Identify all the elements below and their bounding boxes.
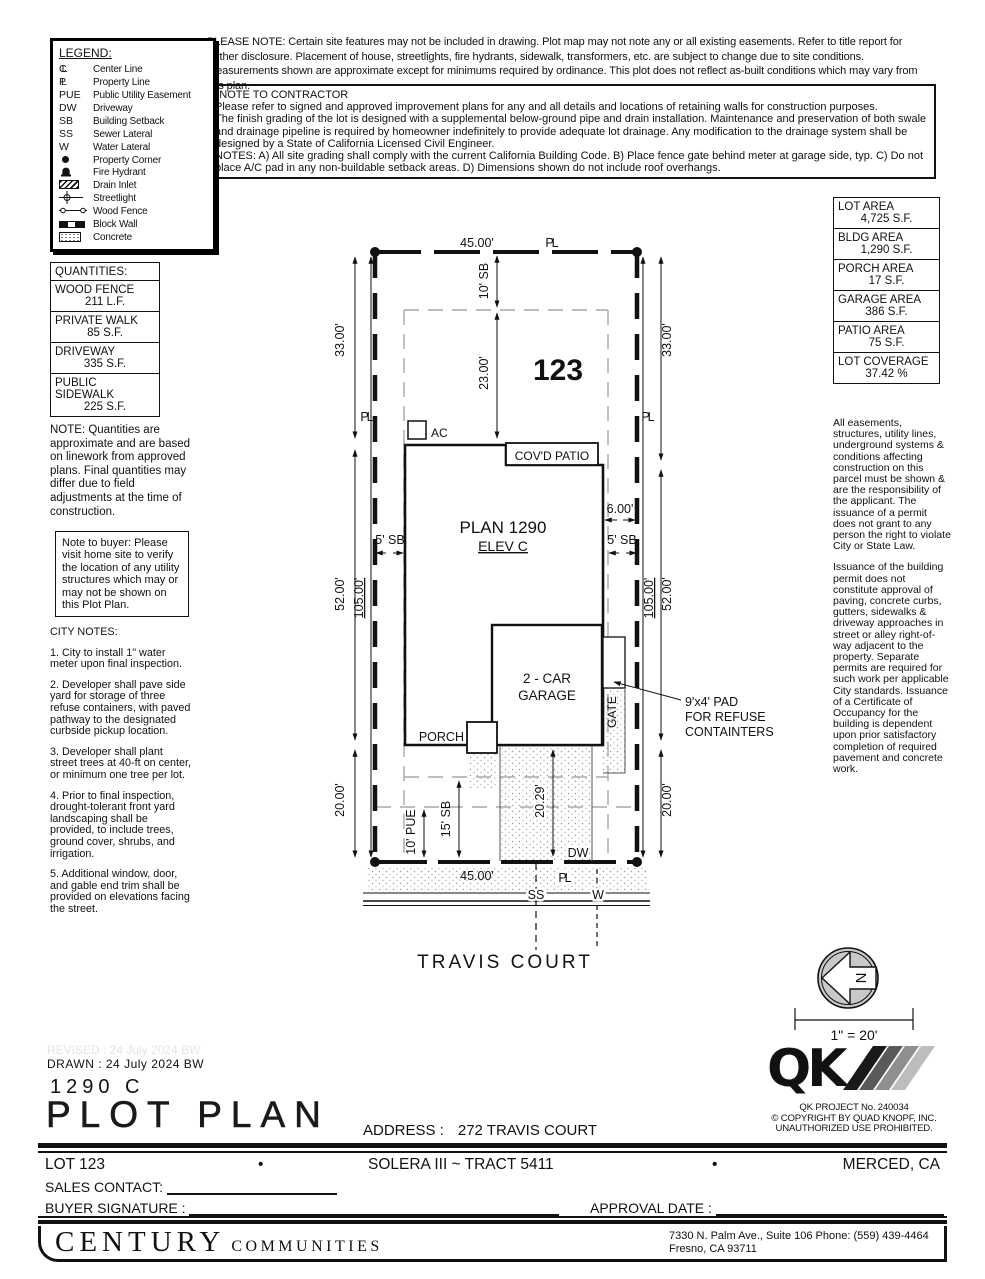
quantity-row: DRIVEWAY335 S.F. — [51, 343, 159, 374]
svg-text:SS: SS — [528, 888, 545, 902]
centerline-symbol: CL — [59, 64, 93, 74]
sewer-symbol: SS — [59, 129, 93, 139]
brand-secondary: COMMUNITIES — [231, 1238, 382, 1255]
title-rule-thick — [38, 1143, 947, 1148]
legend-item: Fire Hydrant — [59, 167, 207, 180]
builder-address: 7330 N. Palm Ave., Suite 106 Phone: (559… — [669, 1230, 944, 1256]
lot-number-label: 123 — [533, 354, 583, 387]
svg-text:105.00': 105.00' — [642, 578, 656, 619]
ac-pad — [408, 421, 426, 439]
fire-hydrant-icon — [59, 166, 93, 179]
legend-item: Concrete — [59, 231, 207, 244]
patio-label: COV'D PATIO — [515, 449, 590, 463]
svg-text:45.00': 45.00' — [460, 236, 494, 250]
concrete-icon — [59, 232, 93, 244]
svg-text:QK: QK — [767, 1040, 849, 1098]
contractor-body: Please refer to signed and approved impr… — [215, 101, 928, 174]
legend-item: Wood Fence — [59, 205, 207, 218]
block-wall-icon — [59, 220, 93, 230]
qk-logo: QK — [765, 1040, 943, 1098]
contractor-title: *NOTE TO CONTRACTOR — [215, 89, 928, 101]
quantities-note: NOTE: Quantities are approximate and are… — [50, 424, 192, 519]
quantity-row: WOOD FENCE211 L.F. — [51, 281, 159, 312]
quantities-title: QUANTITIES: — [51, 263, 159, 281]
svg-text:20.00': 20.00' — [660, 783, 674, 817]
quantity-row: PRIVATE WALK85 S.F. — [51, 312, 159, 343]
builder-footer: CENTURYCOMMUNITIES 7330 N. Palm Ave., Su… — [38, 1226, 947, 1262]
svg-text:W: W — [592, 888, 604, 902]
legend-item: Streetlight — [59, 192, 207, 205]
qk-project-number: QK PROJECT No. 240034 — [765, 1103, 943, 1114]
svg-text:10' PUE: 10' PUE — [404, 809, 418, 854]
svg-text:FOR REFUSE: FOR REFUSE — [685, 710, 766, 724]
legend-item: WWater Lateral — [59, 141, 207, 154]
builder-brand: CENTURYCOMMUNITIES — [41, 1226, 383, 1259]
ac-label: AC — [431, 426, 448, 440]
buyer-signature-label: BUYER SIGNATURE : — [45, 1200, 186, 1216]
separator-bullet: • — [258, 1156, 263, 1174]
legend-box: LEGEND: CLCenter Line PLProperty Line PU… — [50, 38, 216, 252]
legend-item: PLProperty Line — [59, 76, 207, 89]
svg-text:PL: PL — [545, 236, 558, 250]
sales-contact-row: SALES CONTACT: — [45, 1179, 337, 1195]
porch-label: PORCH — [419, 730, 464, 744]
note-to-contractor-box: *NOTE TO CONTRACTOR Please refer to sign… — [207, 84, 936, 179]
revised-note: REVISED : 24 July 2024 BW — [47, 1043, 200, 1057]
drain-inlet-icon — [59, 180, 93, 191]
svg-text:15' SB: 15' SB — [439, 801, 453, 837]
city-notes: CITY NOTES: 1. City to install 1" water … — [50, 627, 192, 924]
svg-text:5' SB: 5' SB — [607, 533, 637, 547]
buyer-signature-row: BUYER SIGNATURE : — [45, 1200, 559, 1216]
north-label: N — [853, 973, 870, 984]
footer-rule-thin — [38, 1216, 947, 1218]
separator-bullet: • — [712, 1156, 717, 1174]
title-rule-thin — [38, 1151, 947, 1153]
svg-text:20.00': 20.00' — [333, 783, 347, 817]
legend-item: CLCenter Line — [59, 63, 207, 76]
property-line-symbol: PL — [59, 77, 93, 87]
tract-label: SOLERA III ~ TRACT 5411 — [368, 1156, 554, 1174]
city-note: 4. Prior to final inspection, drought-to… — [50, 791, 192, 861]
lot-label: LOT 123 — [45, 1156, 105, 1174]
svg-text:PL: PL — [641, 410, 654, 424]
builder-address-line2: Fresno, CA 93711 — [669, 1243, 934, 1256]
svg-text:6.00': 6.00' — [607, 502, 634, 516]
svg-text:PL: PL — [360, 410, 373, 424]
buyer-note-box: Note to buyer: Please visit home site to… — [55, 531, 189, 617]
qk-logo-block: QK QK PROJECT No. 240034 © COPYRIGHT BY … — [765, 1040, 943, 1135]
city-label: MERCED, CA — [813, 1156, 940, 1174]
address-line: ADDRESS :272 TRAVIS COURT — [363, 1122, 597, 1139]
qk-logo-stripes — [843, 1046, 935, 1090]
gate-label: GATE — [605, 696, 619, 728]
approval-date-field[interactable] — [716, 1200, 944, 1216]
svg-text:20.29': 20.29' — [533, 784, 547, 818]
street-name-label: TRAVIS COURT — [417, 952, 593, 973]
svg-text:33.00': 33.00' — [333, 323, 347, 357]
svg-text:52.00': 52.00' — [660, 577, 674, 611]
svg-text:CONTAINTERS: CONTAINTERS — [685, 725, 774, 739]
svg-text:33.00': 33.00' — [660, 323, 674, 357]
sheet-title: PLOT PLAN — [46, 1094, 330, 1136]
porch — [467, 722, 497, 753]
driveway-symbol: DW — [59, 103, 93, 113]
legend-title: LEGEND: — [59, 46, 207, 60]
site-plan-drawing: 123 PLAN 1290 ELEV C COV'D PATIO 2 - CAR… — [330, 180, 955, 1045]
svg-text:105.00': 105.00' — [352, 578, 366, 619]
water-symbol: W — [59, 142, 93, 152]
pue-symbol: PUE — [59, 90, 93, 100]
city-note: 1. City to install 1" water meter upon f… — [50, 648, 192, 671]
garage-label: 2 - CAR — [523, 671, 571, 686]
legend-item: SSSewer Lateral — [59, 128, 207, 141]
svg-text:9'x4' PAD: 9'x4' PAD — [685, 695, 738, 709]
address-label: ADDRESS : — [363, 1122, 444, 1139]
approval-date-row: APPROVAL DATE : — [590, 1200, 944, 1216]
footer-rule-thick — [38, 1220, 947, 1224]
builder-address-line1: 7330 N. Palm Ave., Suite 106 Phone: (559… — [669, 1230, 934, 1243]
buyer-signature-field[interactable] — [189, 1200, 559, 1216]
setback-symbol: SB — [59, 116, 93, 126]
legend-item: DWDriveway — [59, 102, 207, 115]
quantity-row: PUBLIC SIDEWALK225 S.F. — [51, 374, 159, 416]
city-note: 3. Developer shall plant street trees at… — [50, 747, 192, 782]
legend-item: PUEPublic Utility Easement — [59, 89, 207, 102]
city-note: 5. Additional window, door, and gable en… — [50, 869, 192, 915]
city-note: 2. Developer shall pave side yard for st… — [50, 680, 192, 738]
city-notes-title: CITY NOTES: — [50, 627, 192, 639]
property-corner-icon — [59, 155, 93, 165]
streetlight-icon — [59, 191, 93, 206]
approval-date-label: APPROVAL DATE : — [590, 1200, 712, 1216]
plot-plan-sheet: PLEASE NOTE: Certain site features may n… — [0, 0, 985, 1279]
svg-text:5' SB: 5' SB — [375, 533, 405, 547]
brand-primary: CENTURY — [55, 1226, 225, 1258]
svg-text:10' SB: 10' SB — [477, 263, 491, 299]
sales-contact-label: SALES CONTACT: — [45, 1179, 163, 1195]
svg-text:23.00': 23.00' — [477, 356, 491, 390]
sales-contact-field[interactable] — [167, 1179, 337, 1195]
legend-item: Property Corner — [59, 154, 207, 167]
address-value: 272 TRAVIS COURT — [458, 1122, 597, 1139]
plan-label: PLAN 1290 — [460, 518, 547, 537]
private-walk — [468, 754, 498, 788]
quantities-table: QUANTITIES: WOOD FENCE211 L.F. PRIVATE W… — [50, 262, 160, 417]
north-arrow: N — [818, 948, 878, 1008]
legend-item: SBBuilding Setback — [59, 115, 207, 128]
legend-item: Block Wall — [59, 218, 207, 231]
elevation-label: ELEV C — [478, 538, 528, 554]
refuse-pad — [603, 637, 625, 688]
wood-fence-icon — [59, 206, 93, 217]
qk-unauthorized: UNAUTHORIZED USE PROHIBITED. — [765, 1124, 943, 1135]
drawn-note: DRAWN : 24 July 2024 BW — [47, 1057, 204, 1071]
garage-label: GARAGE — [518, 688, 576, 703]
svg-text:52.00': 52.00' — [333, 577, 347, 611]
public-sidewalk — [366, 866, 648, 892]
svg-text:DW: DW — [568, 846, 589, 860]
svg-text:45.00': 45.00' — [460, 869, 494, 883]
